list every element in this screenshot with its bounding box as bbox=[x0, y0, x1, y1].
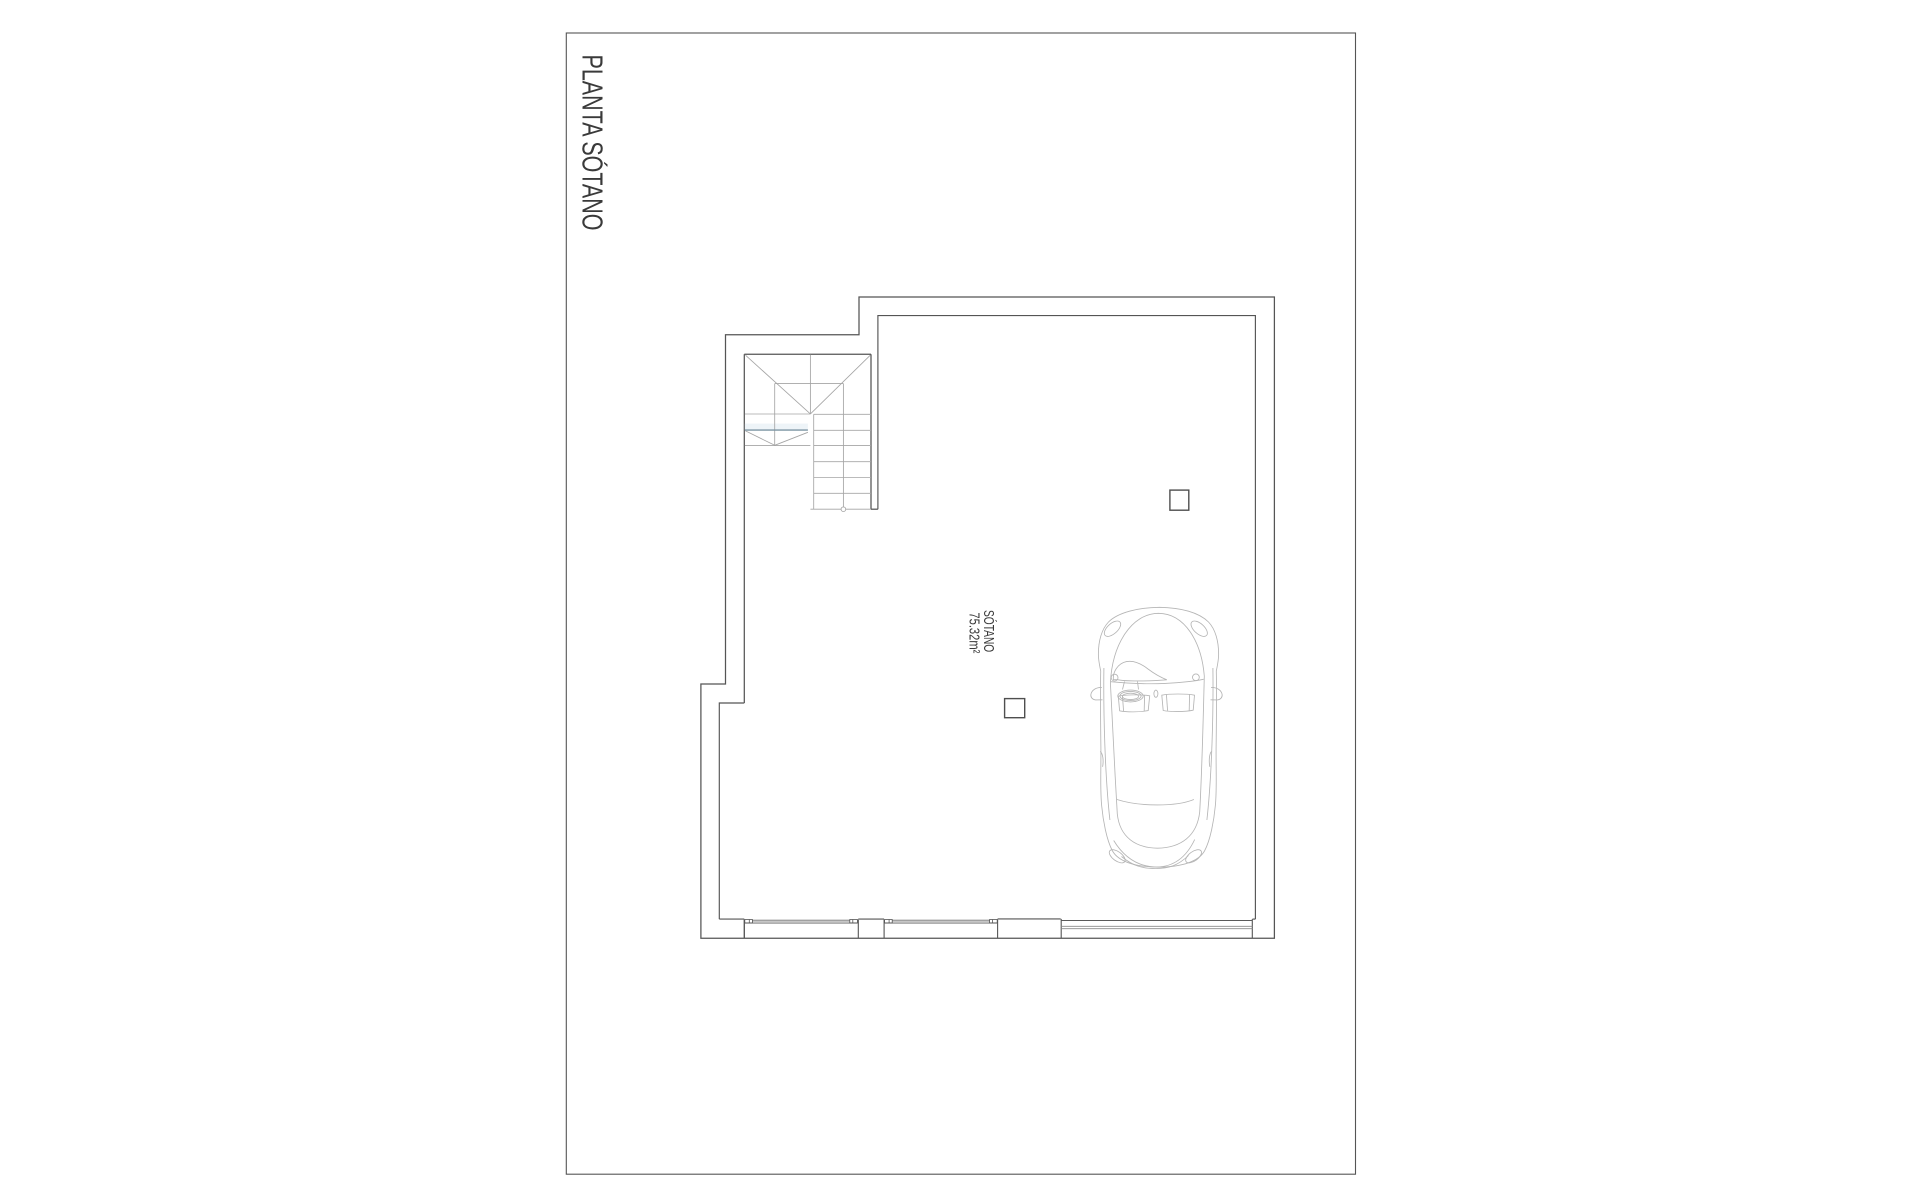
svg-text:PLANTA SÓTANO: PLANTA SÓTANO bbox=[576, 55, 608, 231]
svg-text:75.32m²: 75.32m² bbox=[965, 612, 982, 653]
